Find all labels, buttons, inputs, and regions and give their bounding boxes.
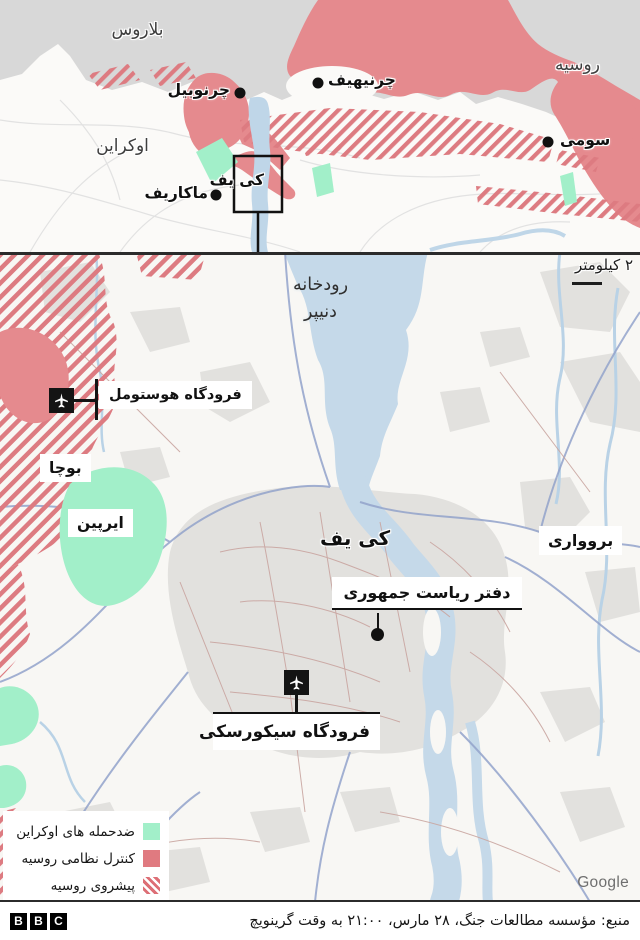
detail-map: ۲ کیلومتر رودخانه دنیپر فرودگاه هوستومل …	[0, 252, 640, 902]
label-russia: روسیه	[530, 55, 625, 75]
label-hostomel-airport: فرودگاه هوستومل	[99, 381, 252, 409]
red-swatch-icon	[143, 850, 160, 867]
label-sikorsky-airport: فرودگاه سیکورسکی	[213, 712, 380, 750]
green-swatch-icon	[143, 823, 160, 840]
map-legend: ضدحمله های اوکراین کنترل نظامی روسیه پیش…	[3, 811, 169, 905]
hatch-swatch-icon	[143, 877, 160, 894]
overview-map: بلاروس روسیه اوکراین چرنوبیل چرنیهیف سوم…	[0, 0, 640, 252]
label-brovary: بروواری	[539, 526, 622, 555]
label-makariv: ماکاریف	[144, 184, 208, 202]
label-ukraine: اوکراین	[75, 136, 170, 156]
scale-label: ۲ کیلومتر	[575, 256, 633, 274]
chernihiv-dot	[313, 78, 324, 89]
source-attribution: منبع: مؤسسه مطالعات جنگ، ۲۸ مارس، ۲۱:۰۰ …	[249, 913, 630, 929]
bbc-war-map-graphic: بلاروس روسیه اوکراین چرنوبیل چرنیهیف سوم…	[0, 0, 640, 940]
sumy-dot	[543, 137, 554, 148]
sikorsky-airport-icon	[284, 670, 309, 695]
scale-bar	[572, 282, 602, 285]
footer: B B C منبع: مؤسسه مطالعات جنگ، ۲۸ مارس، …	[0, 902, 640, 940]
bbc-logo: B B C	[10, 913, 67, 930]
google-attribution: Google	[577, 874, 629, 892]
label-kyiv: کی یف	[320, 526, 390, 550]
label-belarus: بلاروس	[85, 20, 190, 40]
hostomel-airport-icon	[49, 388, 74, 413]
airplane-icon	[288, 674, 305, 691]
legend-item-russian-advance: پیشروی روسیه	[9, 872, 160, 899]
detail-map-canvas	[0, 252, 640, 902]
label-presidential-office: دفتر ریاست جمهوری	[332, 577, 522, 610]
airplane-icon	[53, 392, 70, 409]
makariv-dot	[211, 190, 222, 201]
label-dnipro-river: رودخانه دنیپر	[263, 272, 378, 326]
label-sumy: سومی	[560, 131, 622, 149]
label-irpin: ایرپین	[68, 509, 133, 537]
legend-item-russian-control: کنترل نظامی روسیه	[9, 845, 160, 872]
legend-item-counterattacks: ضدحمله های اوکراین	[9, 818, 160, 845]
label-chernobyl: چرنوبیل	[146, 81, 230, 99]
label-bucha: بوچا	[40, 454, 91, 482]
chernobyl-dot	[235, 88, 246, 99]
label-chernihiv: چرنیهیف	[328, 71, 400, 89]
label-kyiv-inset: کی یف	[218, 171, 264, 189]
presidential-office-dot	[371, 628, 384, 641]
